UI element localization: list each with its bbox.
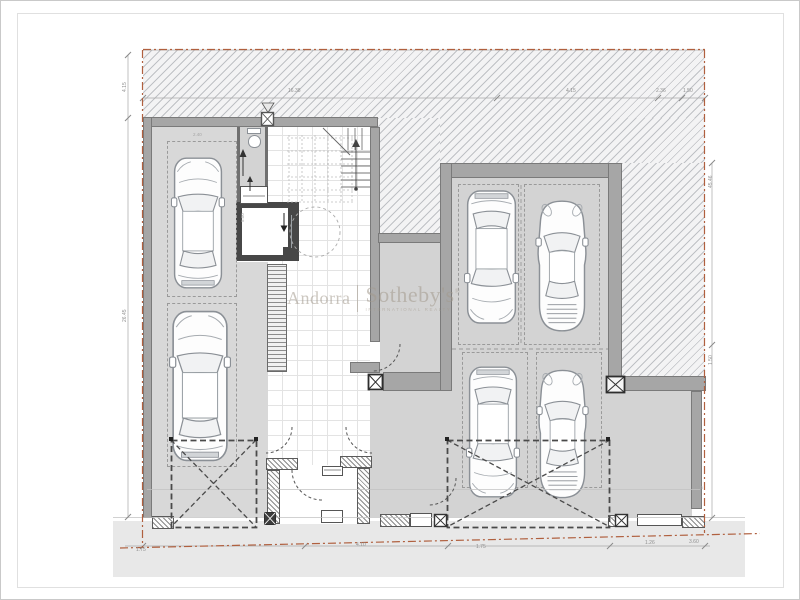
watermark-brand: Sotheby's bbox=[365, 282, 454, 307]
dimension-label: 2.36 bbox=[656, 89, 666, 94]
watermark-registered: ® bbox=[455, 288, 461, 296]
dimension-label: 1.50 bbox=[709, 355, 714, 365]
watermark-tagline: INTERNATIONAL REALTY bbox=[365, 307, 451, 312]
watermark-brand-block: Sotheby's® INTERNATIONAL REALTY bbox=[365, 284, 460, 312]
column-marker-icon bbox=[262, 103, 628, 527]
dimension-label: 45.46 bbox=[709, 175, 714, 188]
watermark-region: Andorra bbox=[287, 288, 350, 309]
dimension-label: 1.50 bbox=[683, 89, 693, 94]
door-swing-arc bbox=[266, 344, 456, 505]
dimension-label: 1.75 bbox=[136, 548, 146, 553]
garage-door-zone bbox=[169, 437, 610, 528]
dimension-label: 3.60 bbox=[689, 540, 699, 545]
direction-arrow-icon bbox=[240, 149, 254, 191]
dimension-label: 7.26 bbox=[694, 486, 703, 491]
dimension-label: 5.00 bbox=[241, 213, 246, 222]
turning-circle-dashed bbox=[290, 207, 340, 257]
dimension-label: 1.26 bbox=[645, 541, 655, 546]
stairs-icon bbox=[323, 128, 370, 191]
floor-plan-canvas: Andorra Sotheby's® INTERNATIONAL REALTY … bbox=[0, 0, 800, 600]
dimension-label: 4.15 bbox=[123, 82, 128, 92]
dimension-label: 1.75 bbox=[476, 545, 486, 550]
stall-separators bbox=[452, 185, 608, 349]
dimension-label: 16.38 bbox=[288, 89, 301, 94]
dimension-label: 4.15 bbox=[566, 89, 576, 94]
watermark-divider bbox=[357, 285, 358, 312]
dimension-label: 4.10 bbox=[356, 543, 366, 548]
dimension-label: 26.45 bbox=[123, 309, 128, 322]
watermark: Andorra Sotheby's® INTERNATIONAL REALTY bbox=[287, 284, 460, 312]
dimension-label: 2.40 bbox=[193, 133, 202, 138]
ceiling-grid-dashed bbox=[287, 135, 353, 203]
